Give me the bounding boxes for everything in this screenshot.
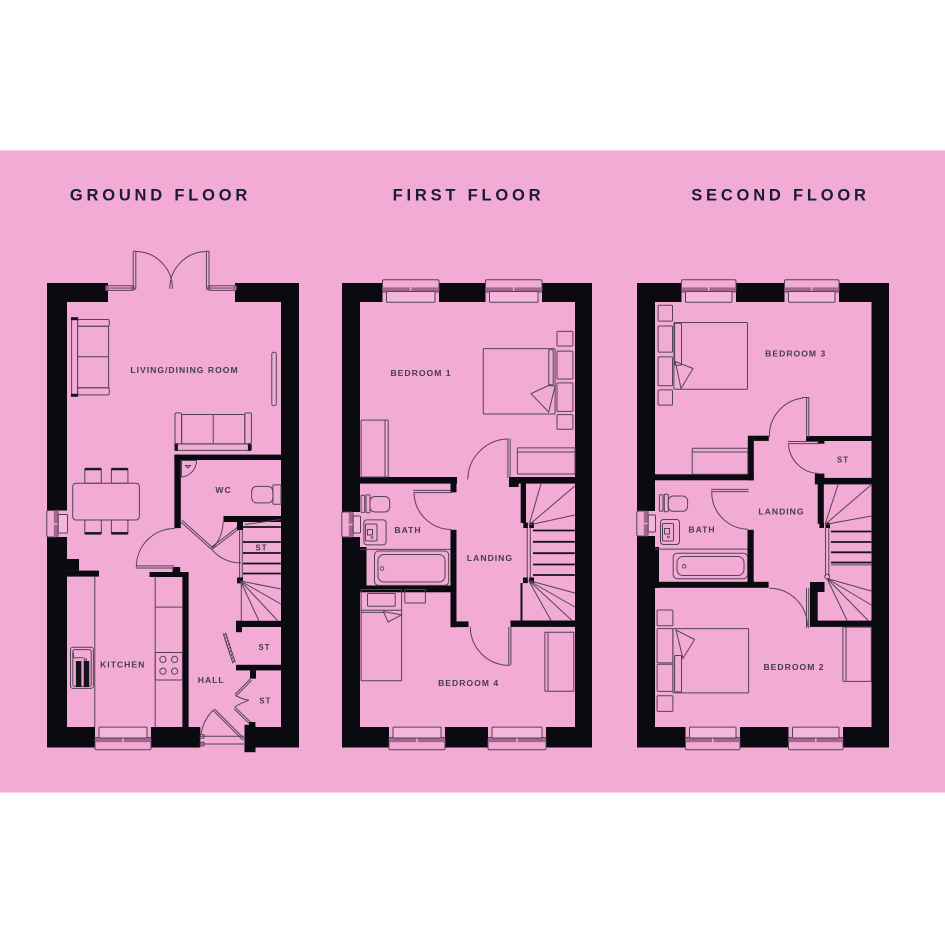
svg-text:BEDROOM 1: BEDROOM 1 bbox=[390, 368, 451, 378]
svg-text:LANDING: LANDING bbox=[467, 553, 513, 563]
svg-text:ST: ST bbox=[256, 544, 268, 553]
svg-text:BEDROOM 3: BEDROOM 3 bbox=[765, 349, 826, 359]
svg-text:BEDROOM 2: BEDROOM 2 bbox=[763, 662, 824, 672]
svg-text:LANDING: LANDING bbox=[758, 506, 804, 516]
svg-text:ST: ST bbox=[259, 697, 271, 706]
svg-text:GROUND FLOOR: GROUND FLOOR bbox=[70, 187, 251, 205]
svg-text:LIVING/DINING ROOM: LIVING/DINING ROOM bbox=[130, 365, 238, 375]
svg-text:BATH: BATH bbox=[394, 525, 421, 535]
svg-text:BEDROOM 4: BEDROOM 4 bbox=[438, 678, 499, 688]
svg-text:FIRST FLOOR: FIRST FLOOR bbox=[393, 187, 545, 205]
svg-text:WC: WC bbox=[215, 485, 231, 495]
svg-text:ST: ST bbox=[259, 643, 271, 652]
svg-text:SECOND FLOOR: SECOND FLOOR bbox=[691, 187, 870, 205]
svg-text:ST: ST bbox=[837, 456, 849, 465]
svg-text:BATH: BATH bbox=[688, 525, 715, 535]
svg-text:HALL: HALL bbox=[198, 675, 225, 685]
svg-text:KITCHEN: KITCHEN bbox=[100, 660, 145, 670]
